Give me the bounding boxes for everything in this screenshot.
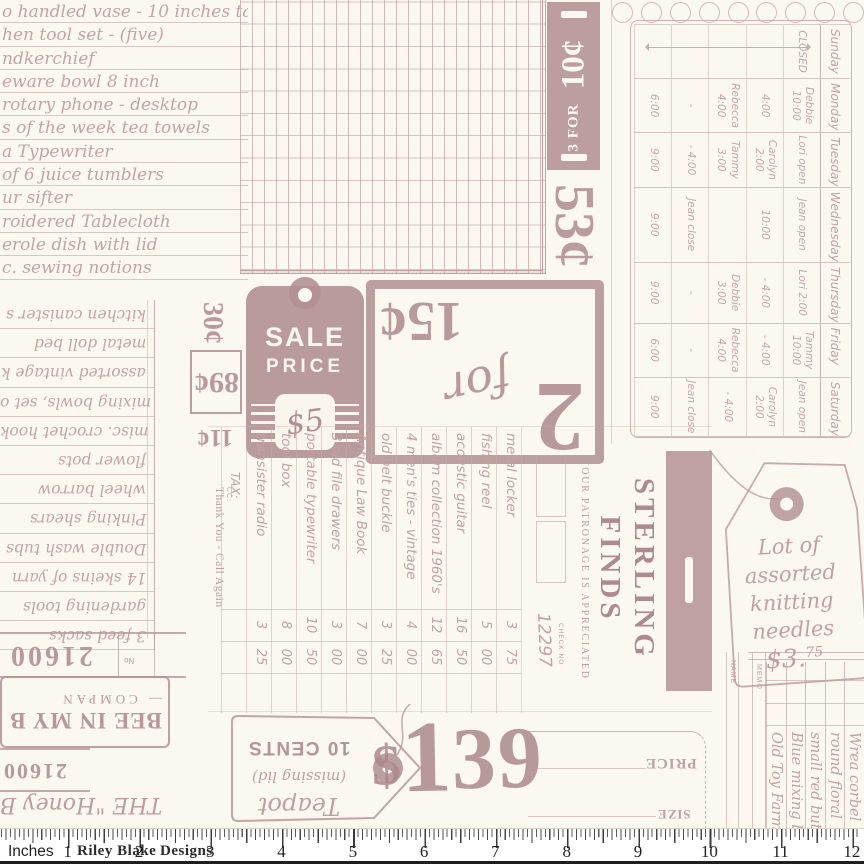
schedule-cell: - 4:00 <box>746 324 783 377</box>
stamp-dash <box>561 154 587 161</box>
ledger-entry: small red butt <box>805 662 825 828</box>
item-name: tool box <box>278 433 294 488</box>
list-item: ndkerchief <box>0 47 248 70</box>
stub-divider <box>154 634 155 676</box>
list-item: roidered Tablecloth <box>0 210 248 233</box>
schedule-day-column: Wednesday Jean open 10:00 Jean close 9:0… <box>634 188 850 263</box>
list-item: flower pots <box>0 446 154 475</box>
list-item: 14 skeins of yarn <box>0 563 154 592</box>
ruler-number: 1 <box>32 842 103 862</box>
schedule-day-label: Wednesday <box>820 188 850 262</box>
schedule-cell: 10:00 <box>746 188 783 262</box>
schedule-cell: Rebecca 4:00 <box>708 79 745 132</box>
item-cents: 50 <box>453 641 468 673</box>
schedule-day-label: Saturday <box>820 378 850 436</box>
ledger-entry: Blue mixing b <box>786 662 806 828</box>
schedule-day-column: Sunday CLOSED <box>634 25 850 79</box>
item-dollars: 4 <box>403 609 418 641</box>
schedule-cell: Debbie 10:00 <box>783 79 820 132</box>
item-dollars: 16 <box>453 609 468 641</box>
item-cents: 50 <box>303 641 318 673</box>
schedule-cell: - 4:00 <box>746 263 783 323</box>
schedule-day-column: Thursday Lori 2:00 - 4:00 Debbie 3:00 - … <box>634 263 850 324</box>
receipt-footer: CC: Thank You - Call Again <box>213 487 232 608</box>
item-cents: 00 <box>403 641 418 673</box>
list-item: ur sifter <box>0 186 248 209</box>
ruler-number: 7 <box>460 842 531 862</box>
handwritten-list-top-left: o handled vase - 10 inches tallhen tool … <box>0 0 248 280</box>
ticket-stub: 21600 <box>0 748 90 792</box>
thirty-cents-stamp: 30¢ <box>192 288 232 358</box>
schedule-cell: - <box>671 324 708 377</box>
cc-label: CC: <box>225 487 232 608</box>
fifteen-cents: 15¢ <box>379 289 463 353</box>
schedule-cell: - <box>671 263 708 323</box>
ruler-number: 9 <box>602 842 673 862</box>
schedule-day-label: Tuesday <box>820 133 850 186</box>
schedule-cell: CLOSED <box>783 25 820 78</box>
item-cents: 25 <box>378 641 393 673</box>
tag-line <box>528 816 656 817</box>
list-item: c. sewing notions <box>0 256 248 279</box>
schedule-cell: 9:00 <box>634 263 671 323</box>
list-item: o handled vase - 10 inches tall <box>0 0 248 23</box>
receipt-item-row: tool box 8 00 <box>271 427 296 713</box>
teapot-script: Teapot <box>230 792 368 820</box>
item-name: Antique Law Book <box>353 433 369 554</box>
item-name: portable typewriter <box>303 433 319 564</box>
item-cents: 00 <box>353 641 368 673</box>
list-item: hen tool set - (five) <box>0 23 248 46</box>
receipt: STERLING FINDS YOUR PATRONAGE IS APPRECI… <box>208 426 712 712</box>
stub-number: 21600 <box>2 758 67 784</box>
three-for-ten-cents-stamp: 10¢ 3 FOR <box>547 2 600 170</box>
three-for-text: 3 FOR <box>565 103 582 151</box>
ruler-numbers: 123456789101112 <box>32 842 864 862</box>
item-cents: 75 <box>503 641 518 673</box>
ruler-number: 3 <box>175 842 246 862</box>
receipt-item-row: metal locker 3 75 <box>496 427 521 713</box>
company-text: — COMPAN <box>59 691 162 707</box>
ruler-number: 4 <box>246 842 317 862</box>
list-item: gardening tools <box>0 592 154 621</box>
receipt-item-row: album collection 1960's 12 65 <box>421 427 446 713</box>
list-item: wheel barrow <box>0 475 154 504</box>
schedule-cell: 6:00 <box>634 324 671 377</box>
tag-line <box>528 768 646 769</box>
honey-company-script: THE "Honey B <box>0 792 162 832</box>
price-text: PRICE <box>246 356 364 378</box>
schedule-card: Sunday CLOSED Monday Debbie 10:00 4:00 R… <box>630 20 852 438</box>
item-dollars: 3 <box>378 609 393 641</box>
fabric-swatch: o handled vase - 10 inches tallhen tool … <box>0 0 864 864</box>
stub-number: 21600 <box>8 639 93 671</box>
brand-name-line1: STERLING <box>627 427 660 711</box>
receipt-item-row: old belt buckle 3 25 <box>371 427 396 713</box>
schedule-cell <box>708 25 745 78</box>
list-item: assorted vintage k <box>0 358 154 387</box>
thank-you-text: Thank You - Call Again <box>213 487 225 608</box>
list-item: kitchen canister s <box>0 300 154 329</box>
schedule-cell: Tammy 3:00 <box>708 133 745 186</box>
item-cents: 00 <box>328 641 343 673</box>
schedule-cell: 9:00 <box>634 188 671 262</box>
list-item: s of the week tea towels <box>0 116 248 139</box>
receipt-item-row: 4 men's ties - vintage 4 00 <box>396 427 421 713</box>
stub-divider <box>118 634 119 676</box>
schedule-cell: - 4:00 <box>708 378 745 436</box>
ruler-number: 2 <box>103 842 174 862</box>
no-label: No <box>124 656 134 665</box>
fifty-three-cents-stamp: 53¢ <box>543 178 605 274</box>
ruler-number: 10 <box>674 842 745 862</box>
receipt-box <box>536 521 566 583</box>
item-name: 4 men's ties - vintage <box>403 433 419 580</box>
ledger-entry: Old Toy Farm <box>766 662 786 828</box>
schedule-day-column: Monday Debbie 10:00 4:00 Rebecca 4:00 - … <box>634 79 850 133</box>
ledger-entry: round floral <box>825 662 845 828</box>
item-dollars: 12 <box>428 609 443 641</box>
schedule-cell: Debbie 3:00 <box>708 263 745 323</box>
item-name: album collection 1960's <box>428 433 444 594</box>
item-dollars: 3 <box>253 609 268 641</box>
schedule-day-column: Tuesday Lori open Carolyn 2:00 Tammy 3:0… <box>634 133 850 187</box>
missing-lid-script: (missing lid) <box>230 768 368 786</box>
brand-name-line2: FINDS <box>593 427 626 711</box>
inch-ruler: Inches Riley Blake Designs 1234567891011… <box>0 828 864 864</box>
patronage-text: YOUR PATRONAGE IS APPRECIATED <box>579 427 590 711</box>
item-dollars: 3 <box>503 609 518 641</box>
memo-label: MEMO <box>755 664 762 690</box>
schedule-cell: Jean open <box>783 188 820 262</box>
ruler-number: 5 <box>317 842 388 862</box>
header-dash <box>685 557 693 603</box>
list-item: rotary phone - desktop <box>0 93 248 116</box>
receipt-header-bar <box>666 451 712 691</box>
schedule-cell: 4:00 <box>746 79 783 132</box>
list-item: a Typewriter <box>0 140 248 163</box>
bee-text: BEE IN MY B <box>9 707 162 733</box>
divider-line <box>611 0 612 444</box>
item-name: 3 old file drawers <box>328 433 344 550</box>
schedule-cell: Carolyn 2:00 <box>746 378 783 436</box>
schedule-cell: 6:00 <box>634 79 671 132</box>
ledger-entries: Old Toy FarmBlue mixing bsmall red buttr… <box>766 662 864 828</box>
list-item: Double wash tubs <box>0 534 154 563</box>
schedule-day-label: Sunday <box>820 25 850 78</box>
schedule-cell: Lori open <box>783 133 820 186</box>
item-name: metal locker <box>503 433 519 517</box>
ten-cents-text: 10 CENTS <box>230 736 368 758</box>
schedule-cell <box>746 25 783 78</box>
closed-span-arrow <box>649 47 807 48</box>
item-dollars: 3 <box>328 609 343 641</box>
receipt-item-row: Antique Law Book 7 00 <box>346 427 371 713</box>
ruler-number: 12 <box>816 842 864 862</box>
schedule-table: Sunday CLOSED Monday Debbie 10:00 4:00 R… <box>634 24 850 437</box>
item-cents: 00 <box>278 641 293 673</box>
receipt-item-row: fishing reel 5 00 <box>471 427 496 713</box>
eighty-nine-cents-stamp: 89¢ <box>190 350 242 414</box>
ledger-rule <box>766 680 864 681</box>
check-no-label: CHECK NO <box>557 623 564 665</box>
schedule-cell: Jean close <box>671 188 708 262</box>
schedule-cell: Rebecca 4:00 <box>708 324 745 377</box>
item-dollars: 5 <box>478 609 493 641</box>
schedule-cell <box>634 25 671 78</box>
item-name: acoustic guitar <box>453 433 469 533</box>
for-script: for <box>439 351 515 418</box>
receipt-item-row: portable typewriter 10 50 <box>296 427 321 713</box>
list-item: mixing bowls, set o <box>0 388 154 417</box>
ledger-entry: Wrea corbel <box>844 662 864 828</box>
schedule-cell: - 4:00 <box>671 133 708 186</box>
ledger-grid-paper <box>240 0 546 274</box>
schedule-cell <box>708 188 745 262</box>
schedule-cell: Lori 2:00 <box>783 263 820 323</box>
schedule-cell <box>671 25 708 78</box>
list-item: eware bowl 8 inch <box>0 70 248 93</box>
ledger-rule <box>766 725 864 726</box>
receipt-items-table: metal locker 3 75 fishing reel 5 00 acou… <box>221 427 522 713</box>
ledger-name-memo-columns: NAME MEMO <box>726 652 766 828</box>
handwritten-list-left: kitchen canister smetal doll bedassorted… <box>0 300 155 650</box>
item-name: old belt buckle <box>378 433 394 533</box>
receipt-box <box>536 455 566 517</box>
list-item: erole dish with lid <box>0 233 248 256</box>
item-name: fishing reel <box>478 433 494 508</box>
item-cents: 25 <box>253 641 268 673</box>
item-name: transister radio <box>253 433 269 536</box>
ruler-number: 11 <box>745 842 816 862</box>
item-dollars: 10 <box>303 609 318 641</box>
list-item: Pinking shears <box>0 504 154 533</box>
stamp-dash <box>561 11 587 18</box>
list-item: metal doll bed <box>0 329 154 358</box>
price-size-tag: PRICE SIZE <box>528 731 706 828</box>
ledger-rule <box>766 703 864 704</box>
tag-hole-icon <box>298 288 312 302</box>
schedule-cell: 9:00 <box>634 133 671 186</box>
schedule-cell: - <box>671 79 708 132</box>
ruler-number: 8 <box>531 842 602 862</box>
list-margin-line <box>147 300 148 638</box>
sale-text: SALE <box>246 322 364 353</box>
ten-cents-text: 10¢ <box>555 39 592 89</box>
ruler-number: 6 <box>388 842 459 862</box>
schedule-day-label: Thursday <box>820 263 850 323</box>
item-dollars: 7 <box>353 609 368 641</box>
schedule-cell: Jean open <box>783 378 820 436</box>
receipt-item-row: 3 old file drawers 3 00 <box>321 427 346 713</box>
list-item: misc. crochet hook <box>0 417 154 446</box>
schedule-cell: Tammy 10:00 <box>783 324 820 377</box>
item-cents: 65 <box>428 641 443 673</box>
schedule-cell: Carolyn 2:00 <box>746 133 783 186</box>
check-number: 12297 <box>533 613 555 668</box>
schedule-day-label: Monday <box>820 79 850 132</box>
receipt-item-row: acoustic guitar 16 50 <box>446 427 471 713</box>
bee-company-stamp: BEE IN MY B — COMPAN <box>0 676 170 748</box>
name-label: NAME <box>729 660 736 684</box>
list-item: of 6 juice tumblers <box>0 163 248 186</box>
schedule-day-column: Friday Tammy 10:00 - 4:00 Rebecca 4:00 -… <box>634 324 850 378</box>
perforation-hole <box>612 2 633 23</box>
item-cents: 00 <box>478 641 493 673</box>
schedule-day-label: Friday <box>820 324 850 377</box>
item-dollars: 8 <box>278 609 293 641</box>
ticket-stub: 21600 No <box>0 632 186 678</box>
receipt-item-row: transister radio 3 25 <box>246 427 271 713</box>
